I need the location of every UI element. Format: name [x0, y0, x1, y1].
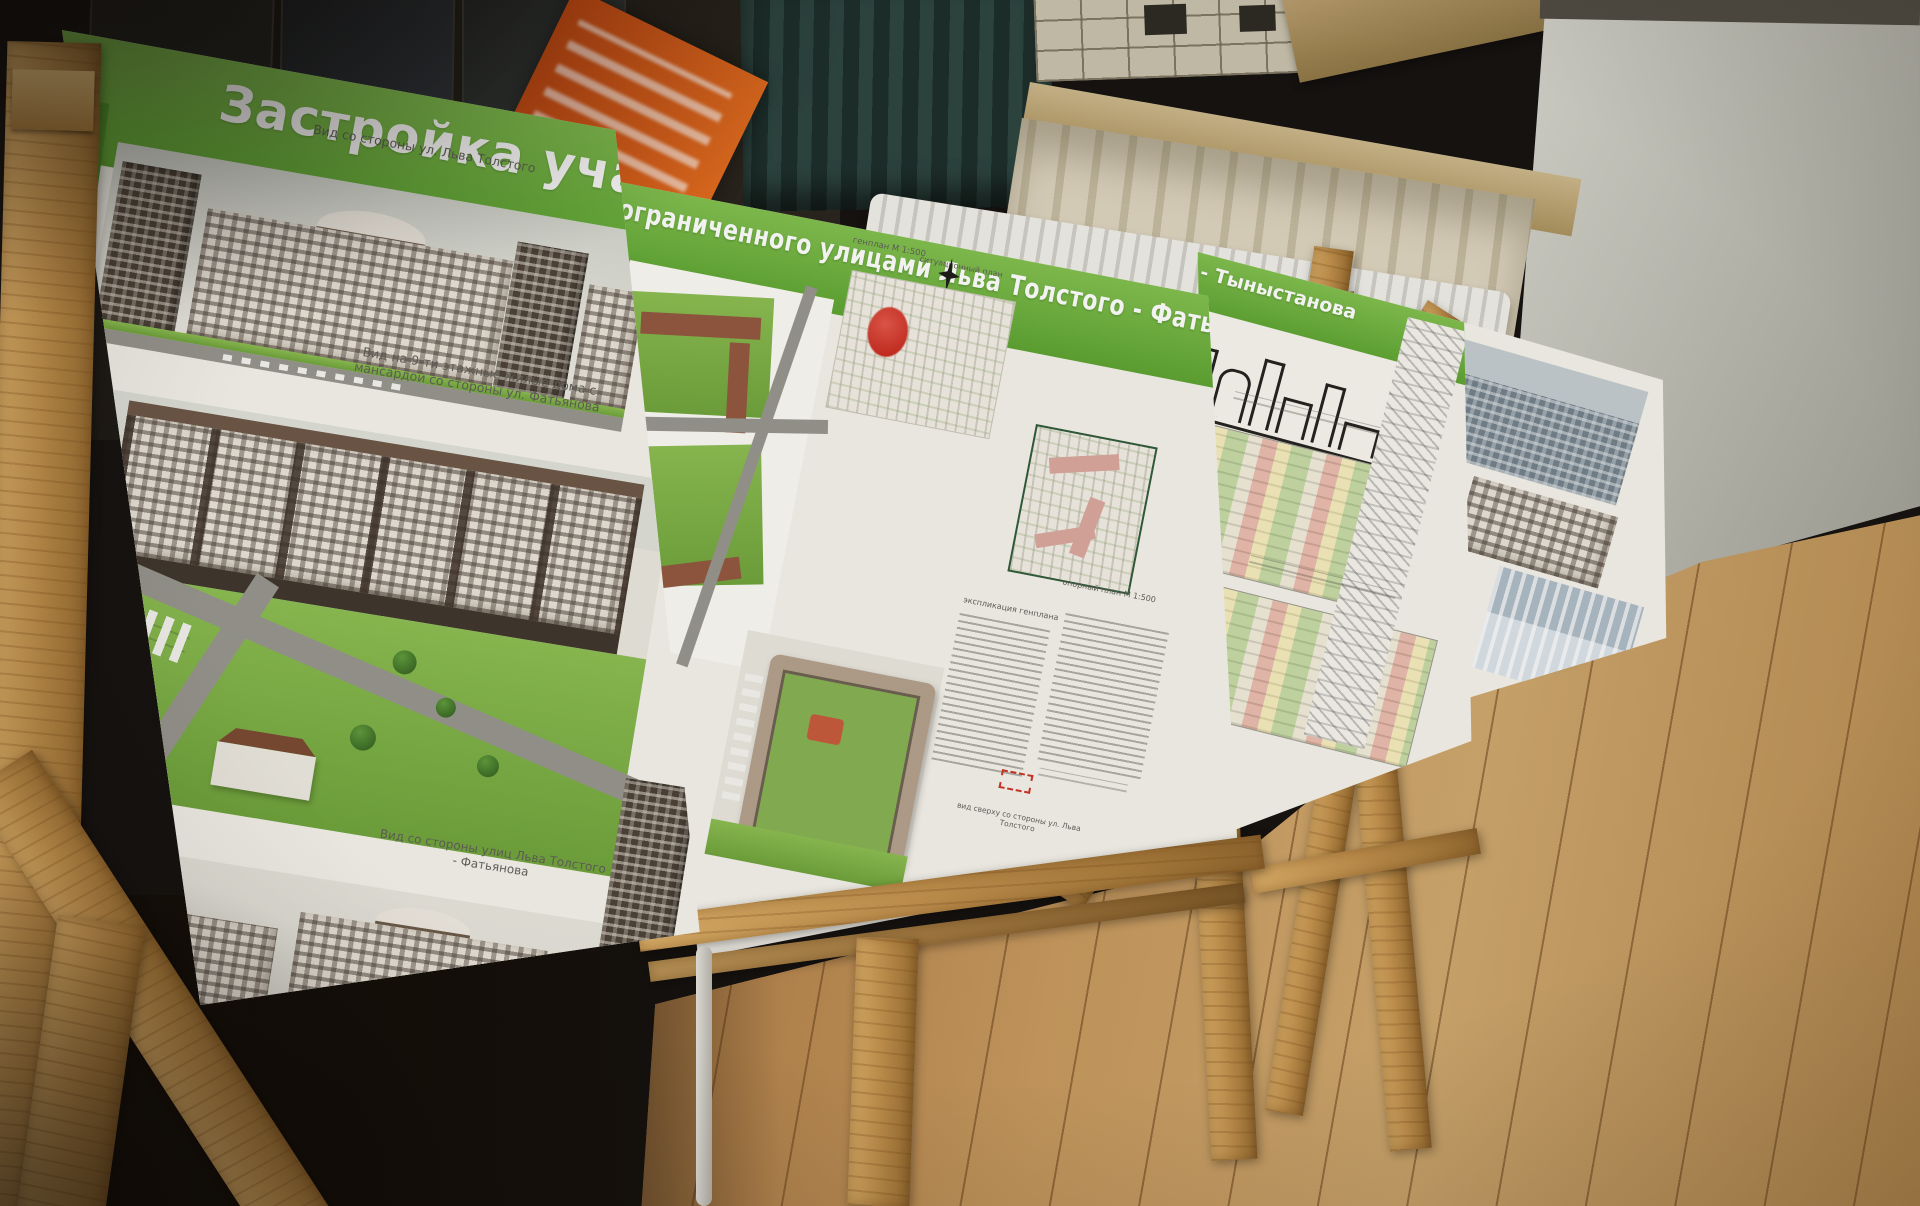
aerial-view-label: вид сверху со стороны ул. Льва Толстого — [952, 800, 1083, 843]
tower-left — [95, 161, 201, 334]
aerial-view-rendering — [704, 630, 944, 892]
presentation-board-1: Застройка участка, Вид со стороны ул. Ль… — [48, 16, 713, 1016]
exhibition-room-photo: - Тыныстанова ограниченного улицами Льва… — [0, 0, 1920, 1206]
easel-left-clamp — [11, 69, 95, 131]
easel-leg-center — [847, 937, 918, 1206]
site-boundary-legend-symbol — [998, 769, 1033, 794]
teal-curtain — [740, 0, 1054, 212]
ceiling-tiles — [1034, 0, 1327, 82]
support-plan-map — [1007, 424, 1157, 595]
ceiling-vent — [1144, 4, 1187, 35]
rendering2 — [38, 388, 675, 876]
situational-plan-map — [825, 270, 1016, 439]
presentation-board-3: - Тыныстанова — [1192, 243, 1480, 843]
metal-pole — [696, 946, 712, 1206]
ceiling-vent — [1239, 5, 1276, 32]
legend-text-column — [1037, 612, 1169, 779]
support-plan-building — [1049, 454, 1120, 474]
site-location-marker — [863, 304, 912, 361]
legend-text-column — [931, 612, 1050, 777]
